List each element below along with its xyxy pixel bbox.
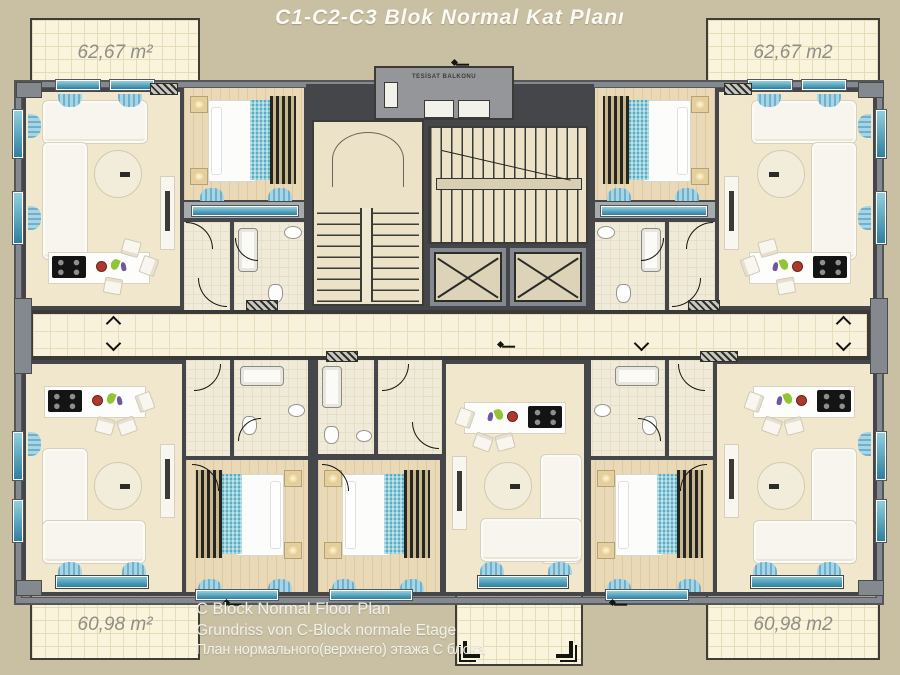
level-marker-icon — [451, 59, 458, 66]
pot-icon — [92, 395, 103, 406]
sofa-icon — [753, 520, 857, 564]
coffee-table-icon — [94, 462, 142, 510]
bathtub-icon — [615, 366, 659, 386]
dining-set — [462, 394, 566, 438]
bed-foot-rug — [404, 470, 430, 558]
stair-landing — [436, 178, 582, 190]
curtain-icon — [58, 562, 82, 575]
bedroom-window-band — [595, 202, 715, 218]
area-label-bottom-left: 60,98 m² — [32, 594, 198, 656]
nightstand-icon — [691, 96, 709, 113]
cooktop-icon — [52, 256, 86, 278]
column — [858, 82, 884, 98]
area-label-bottom-right: 60,98 m2 — [708, 594, 878, 656]
bathtub-icon — [322, 366, 342, 408]
stairwell-right — [428, 126, 588, 244]
curtain-icon — [817, 562, 841, 575]
window-icon — [13, 500, 23, 542]
curtain-icon — [753, 562, 777, 575]
window-icon — [192, 206, 298, 216]
sink-icon — [284, 226, 302, 239]
cooktop-icon — [48, 390, 82, 412]
area-label-top-left: 62,67 m² — [32, 20, 198, 86]
tv-cabinet-icon — [724, 176, 739, 250]
apartment-bottom-left — [22, 360, 312, 596]
bed-runner — [629, 100, 649, 180]
pot-icon — [507, 411, 518, 422]
bed-runner — [222, 474, 242, 554]
apartment-top-left — [22, 88, 308, 310]
bed-foot-rug — [270, 96, 296, 184]
nightstand-icon — [190, 96, 208, 113]
window-icon — [876, 192, 886, 244]
corridor — [30, 310, 870, 360]
cooktop-icon — [813, 256, 847, 278]
window-icon — [876, 432, 886, 480]
stair-rail — [360, 208, 373, 302]
curtain-icon — [268, 188, 292, 201]
window-icon — [802, 80, 846, 90]
curtain-icon — [200, 188, 224, 201]
bathtub-icon — [240, 366, 284, 386]
pot-icon — [96, 261, 107, 272]
caption-line-de: Grundriss von C-Block normale Etage — [196, 621, 485, 641]
column — [16, 82, 42, 98]
cooktop-icon — [528, 406, 562, 428]
apartment-top-right — [591, 88, 877, 310]
nightstand-icon — [324, 542, 342, 559]
chair-icon — [776, 277, 797, 296]
bedroom-window-band — [184, 202, 304, 218]
bed-foot-rug — [603, 96, 629, 184]
elevator-car-icon — [434, 252, 502, 302]
coffee-table-icon — [484, 462, 532, 510]
window-icon — [13, 432, 23, 480]
column — [858, 580, 884, 596]
tv-cabinet-icon — [160, 176, 175, 250]
sink-icon — [356, 430, 372, 442]
window-icon — [601, 206, 707, 216]
shaft-hatch — [246, 300, 278, 311]
sofa-icon — [42, 520, 146, 564]
window-icon — [876, 500, 886, 542]
bed-pillow — [270, 481, 281, 549]
column — [16, 580, 42, 596]
balcony-window-icon — [56, 576, 148, 588]
nightstand-icon — [190, 168, 208, 185]
elevator-car-icon — [514, 252, 582, 302]
bed-icon — [190, 94, 298, 186]
bed-pillow — [345, 481, 356, 549]
caption-line-en: C Block Normal Floor Plan — [196, 599, 485, 621]
stair-direction-line — [442, 150, 571, 181]
column — [14, 298, 32, 374]
column-corner-mark-icon — [556, 641, 573, 658]
cooktop-icon — [817, 390, 851, 412]
elevator-shaft — [510, 248, 586, 306]
curtain-icon — [548, 562, 572, 575]
apartment-bottom-center — [312, 360, 588, 596]
bed-pillow — [618, 481, 629, 549]
curtain-icon — [675, 188, 699, 201]
nightstand-icon — [597, 542, 615, 559]
nightstand-icon — [597, 470, 615, 487]
dining-set — [48, 244, 152, 288]
shaft-hatch — [700, 351, 738, 362]
sink-icon — [594, 404, 611, 417]
bed-icon — [601, 94, 709, 186]
curtain-icon — [122, 562, 146, 575]
stair-arch — [332, 132, 404, 187]
tv-cabinet-icon — [452, 456, 467, 530]
caption-line-ru: План нормального(верхнего) этажа С блока — [196, 641, 485, 660]
curtain-icon — [858, 114, 871, 138]
stairwell-left — [312, 120, 424, 306]
sofa-icon — [811, 142, 857, 260]
nightstand-icon — [284, 542, 302, 559]
tv-cabinet-icon — [160, 444, 175, 518]
utility-balcony-label: TESİSAT BALKONU — [376, 74, 512, 80]
curtain-icon — [480, 562, 504, 575]
coffee-table-icon — [757, 462, 805, 510]
balcony-pad-top-right: 62,67 m2 — [706, 18, 880, 90]
ac-unit-icon — [424, 100, 454, 118]
bed-runner — [657, 474, 677, 554]
utility-door-icon — [384, 82, 398, 108]
window-icon — [13, 192, 23, 244]
window-icon — [606, 590, 688, 600]
bed-runner — [384, 474, 404, 554]
window-icon — [110, 80, 154, 90]
pot-icon — [796, 395, 807, 406]
dining-set — [747, 244, 851, 288]
toilet-icon — [324, 426, 339, 444]
tv-cabinet-icon — [724, 444, 739, 518]
pot-icon — [792, 261, 803, 272]
balcony-window-icon — [478, 576, 568, 588]
apartment-bottom-right — [587, 360, 877, 596]
bed-pillow — [211, 107, 222, 175]
balcony-window-icon — [751, 576, 843, 588]
shaft-hatch — [150, 83, 178, 95]
bed-runner — [250, 100, 270, 180]
area-label-top-right: 62,67 m2 — [708, 20, 878, 86]
nightstand-icon — [691, 168, 709, 185]
nightstand-icon — [284, 470, 302, 487]
utility-balcony: TESİSAT BALKONU — [374, 66, 514, 120]
floor-plan-canvas: C1-C2-C3 Blok Normal Kat Planı 62,67 m² … — [0, 0, 900, 675]
elevator-shaft — [430, 248, 506, 306]
window-icon — [748, 80, 792, 90]
coffee-table-icon — [94, 150, 142, 198]
chair-icon — [103, 277, 124, 296]
column — [870, 298, 888, 374]
shaft-hatch — [688, 300, 720, 311]
coffee-table-icon — [757, 150, 805, 198]
dining-set — [44, 378, 148, 422]
caption: C Block Normal Floor Plan Grundriss von … — [196, 599, 485, 660]
window-icon — [13, 110, 23, 158]
sofa-icon — [42, 142, 88, 260]
sink-icon — [597, 226, 615, 239]
curtain-icon — [858, 432, 871, 456]
window-icon — [876, 110, 886, 158]
sofa-icon — [480, 518, 582, 562]
bed-pillow — [677, 107, 688, 175]
window-icon — [56, 80, 100, 90]
toilet-icon — [616, 284, 631, 303]
curtain-icon — [607, 188, 631, 201]
sink-icon — [288, 404, 305, 417]
dining-set — [751, 378, 855, 422]
curtain-icon — [858, 206, 871, 230]
ac-unit-icon — [458, 100, 490, 118]
shaft-hatch — [724, 83, 752, 95]
shaft-hatch — [326, 351, 358, 362]
